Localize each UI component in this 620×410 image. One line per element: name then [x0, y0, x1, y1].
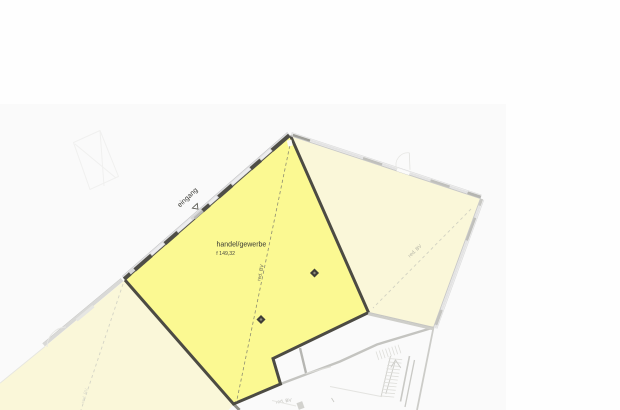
svg-text:handel/gewerbe: handel/gewerbe: [217, 242, 267, 249]
svg-text:f 149,32: f 149,32: [216, 251, 235, 257]
